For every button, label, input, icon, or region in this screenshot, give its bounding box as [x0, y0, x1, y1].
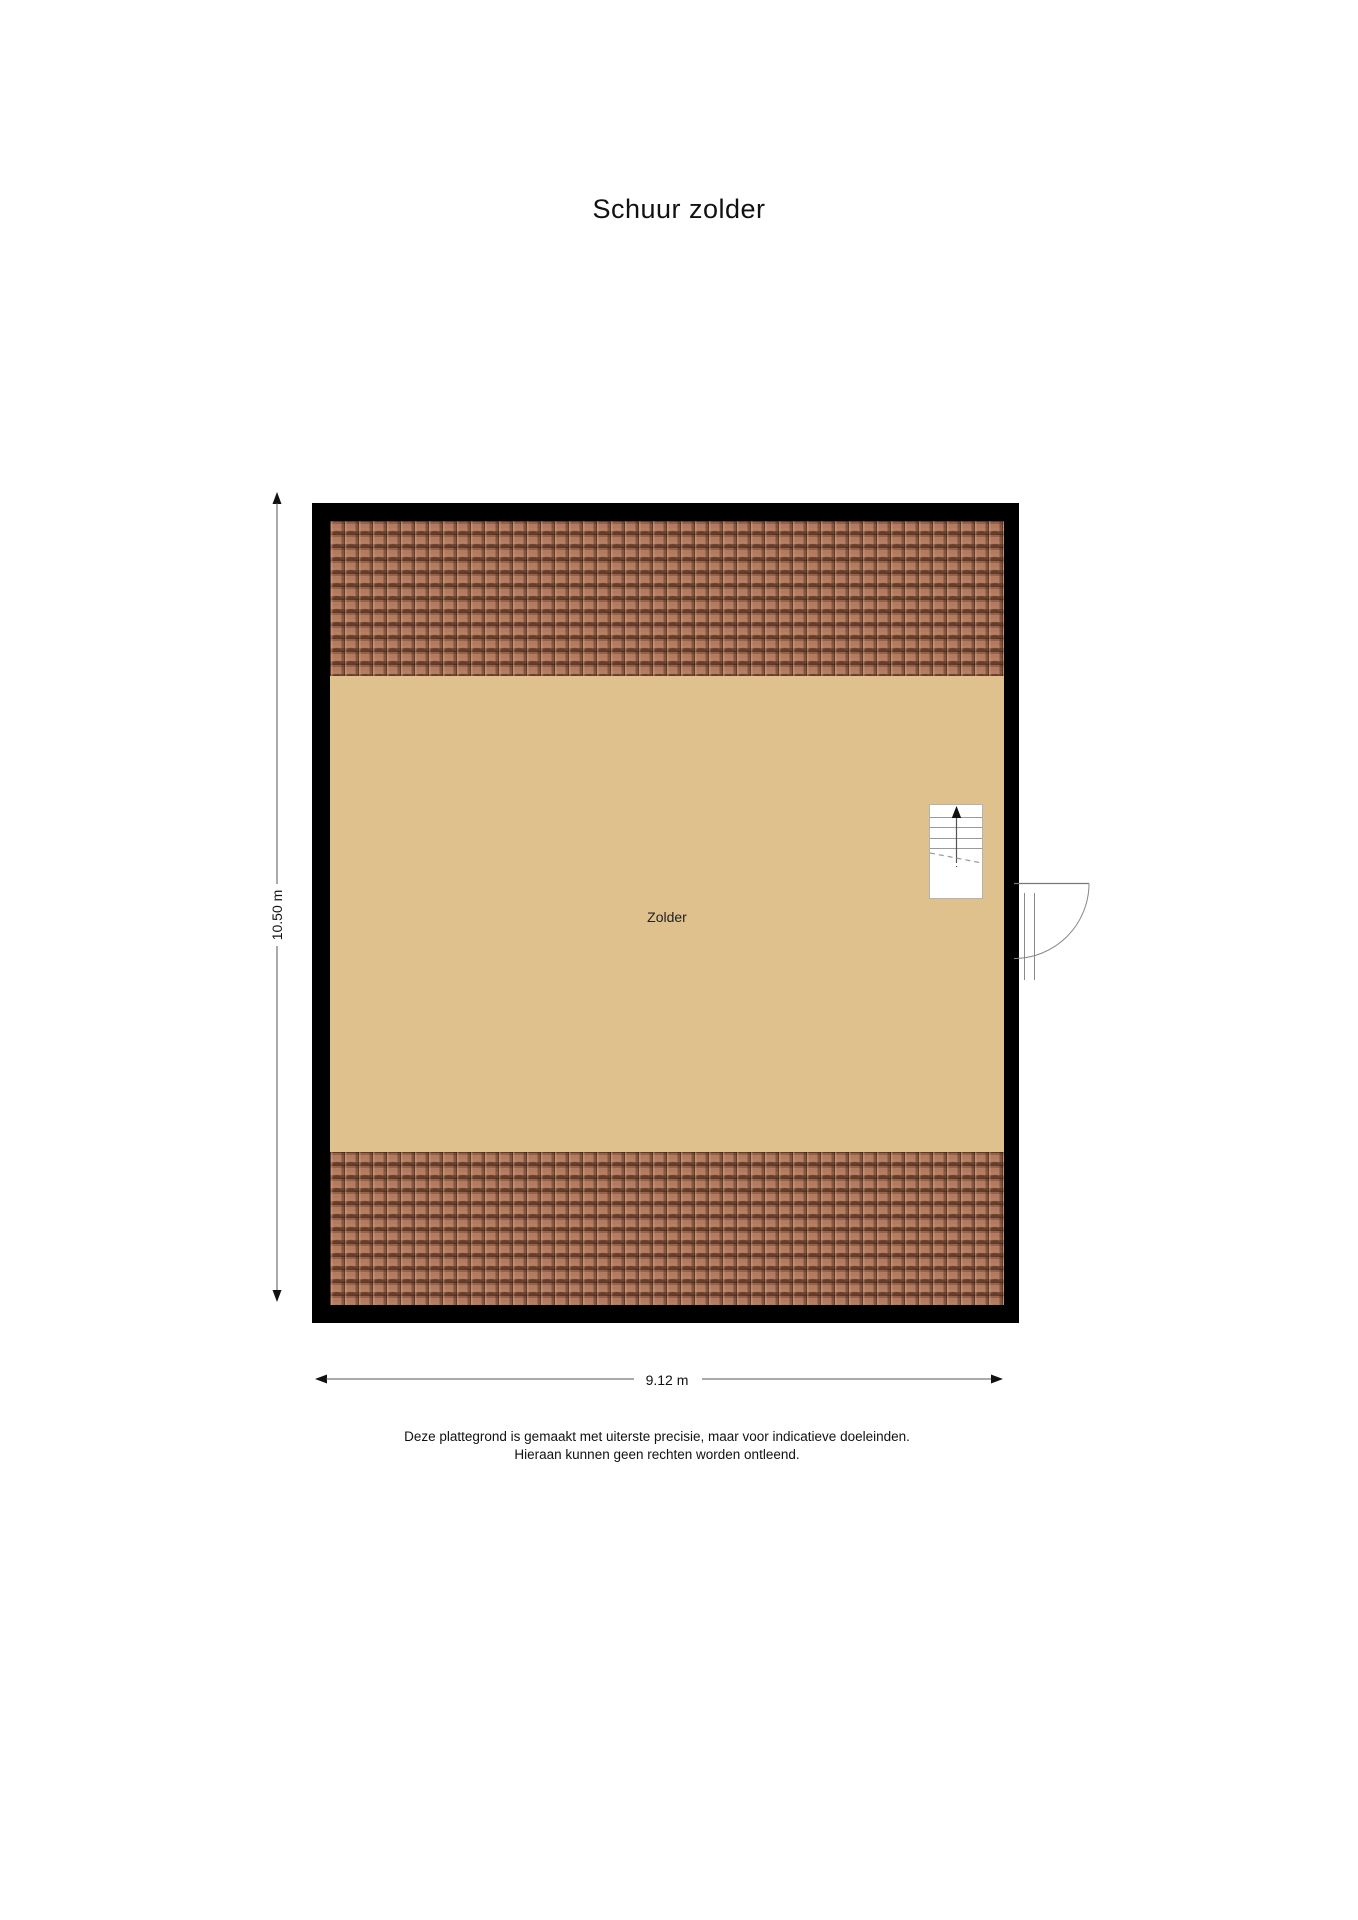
dimension-arrow-left-icon: [315, 1375, 327, 1384]
attic-floor: Zolder: [330, 521, 1004, 1305]
dimension-arrow-up-icon: [273, 492, 282, 504]
door: [1014, 879, 1106, 971]
width-dimension-label: 9.12 m: [607, 1371, 727, 1389]
dimension-arrow-down-icon: [273, 1290, 282, 1302]
disclaimer: Deze plattegrond is gemaakt met uiterste…: [0, 1428, 1314, 1464]
roof-tiles-top: [330, 521, 1004, 676]
disclaimer-line-2: Hieraan kunnen geen rechten worden ontle…: [0, 1446, 1314, 1464]
page-title: Schuur zolder: [0, 194, 1358, 225]
roof-tiles-bottom: [330, 1152, 1004, 1305]
door-swing-arc: [1014, 884, 1089, 959]
height-dimension-label: 10.50 m: [268, 875, 286, 955]
room-label: Zolder: [330, 909, 1004, 925]
dimension-arrow-right-icon: [991, 1375, 1003, 1384]
disclaimer-line-1: Deze plattegrond is gemaakt met uiterste…: [0, 1428, 1314, 1446]
floorplan: Zolder: [312, 503, 1019, 1323]
staircase-drawing: [929, 804, 983, 899]
staircase: [929, 804, 983, 899]
